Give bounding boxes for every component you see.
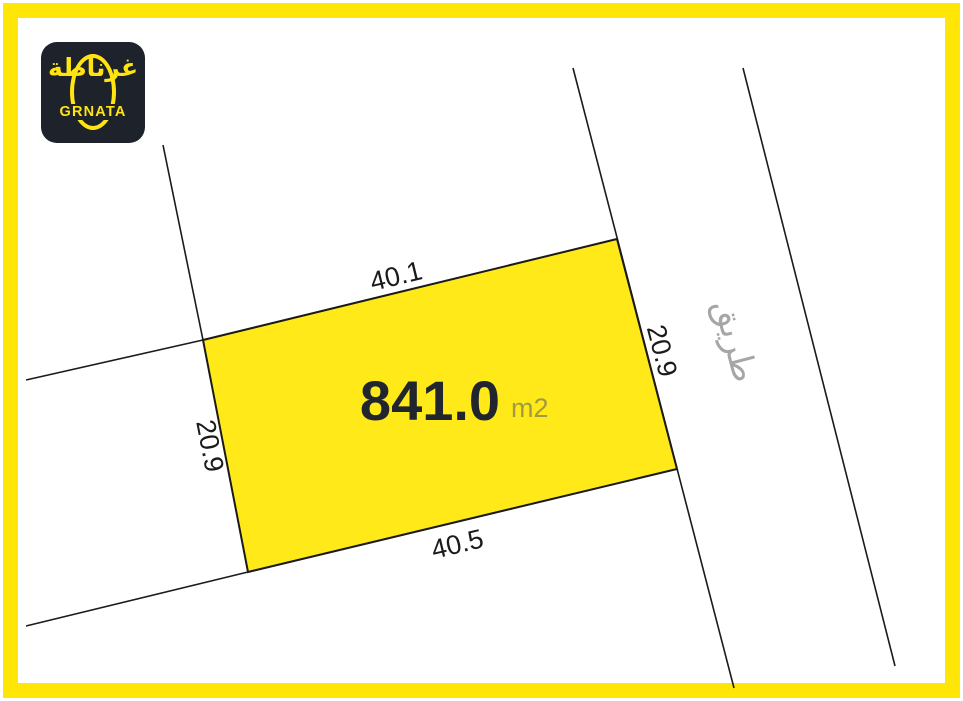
logo-latin-text: GRNATA xyxy=(56,104,129,120)
road-label: طريق xyxy=(705,295,765,386)
boundary-line-left-upper xyxy=(163,145,203,340)
grnata-logo: غرناطة GRNATA xyxy=(41,42,145,143)
area-unit: m2 xyxy=(511,393,549,423)
area-value: 841.0 xyxy=(360,369,500,432)
boundary-line-bottom-extension xyxy=(26,572,248,626)
boundary-line-top-extension xyxy=(26,340,203,380)
logo-arabic-text: غرناطة xyxy=(41,54,145,82)
dimension-label-bottom: 40.5 xyxy=(428,523,486,564)
road-edge-east xyxy=(743,68,895,666)
